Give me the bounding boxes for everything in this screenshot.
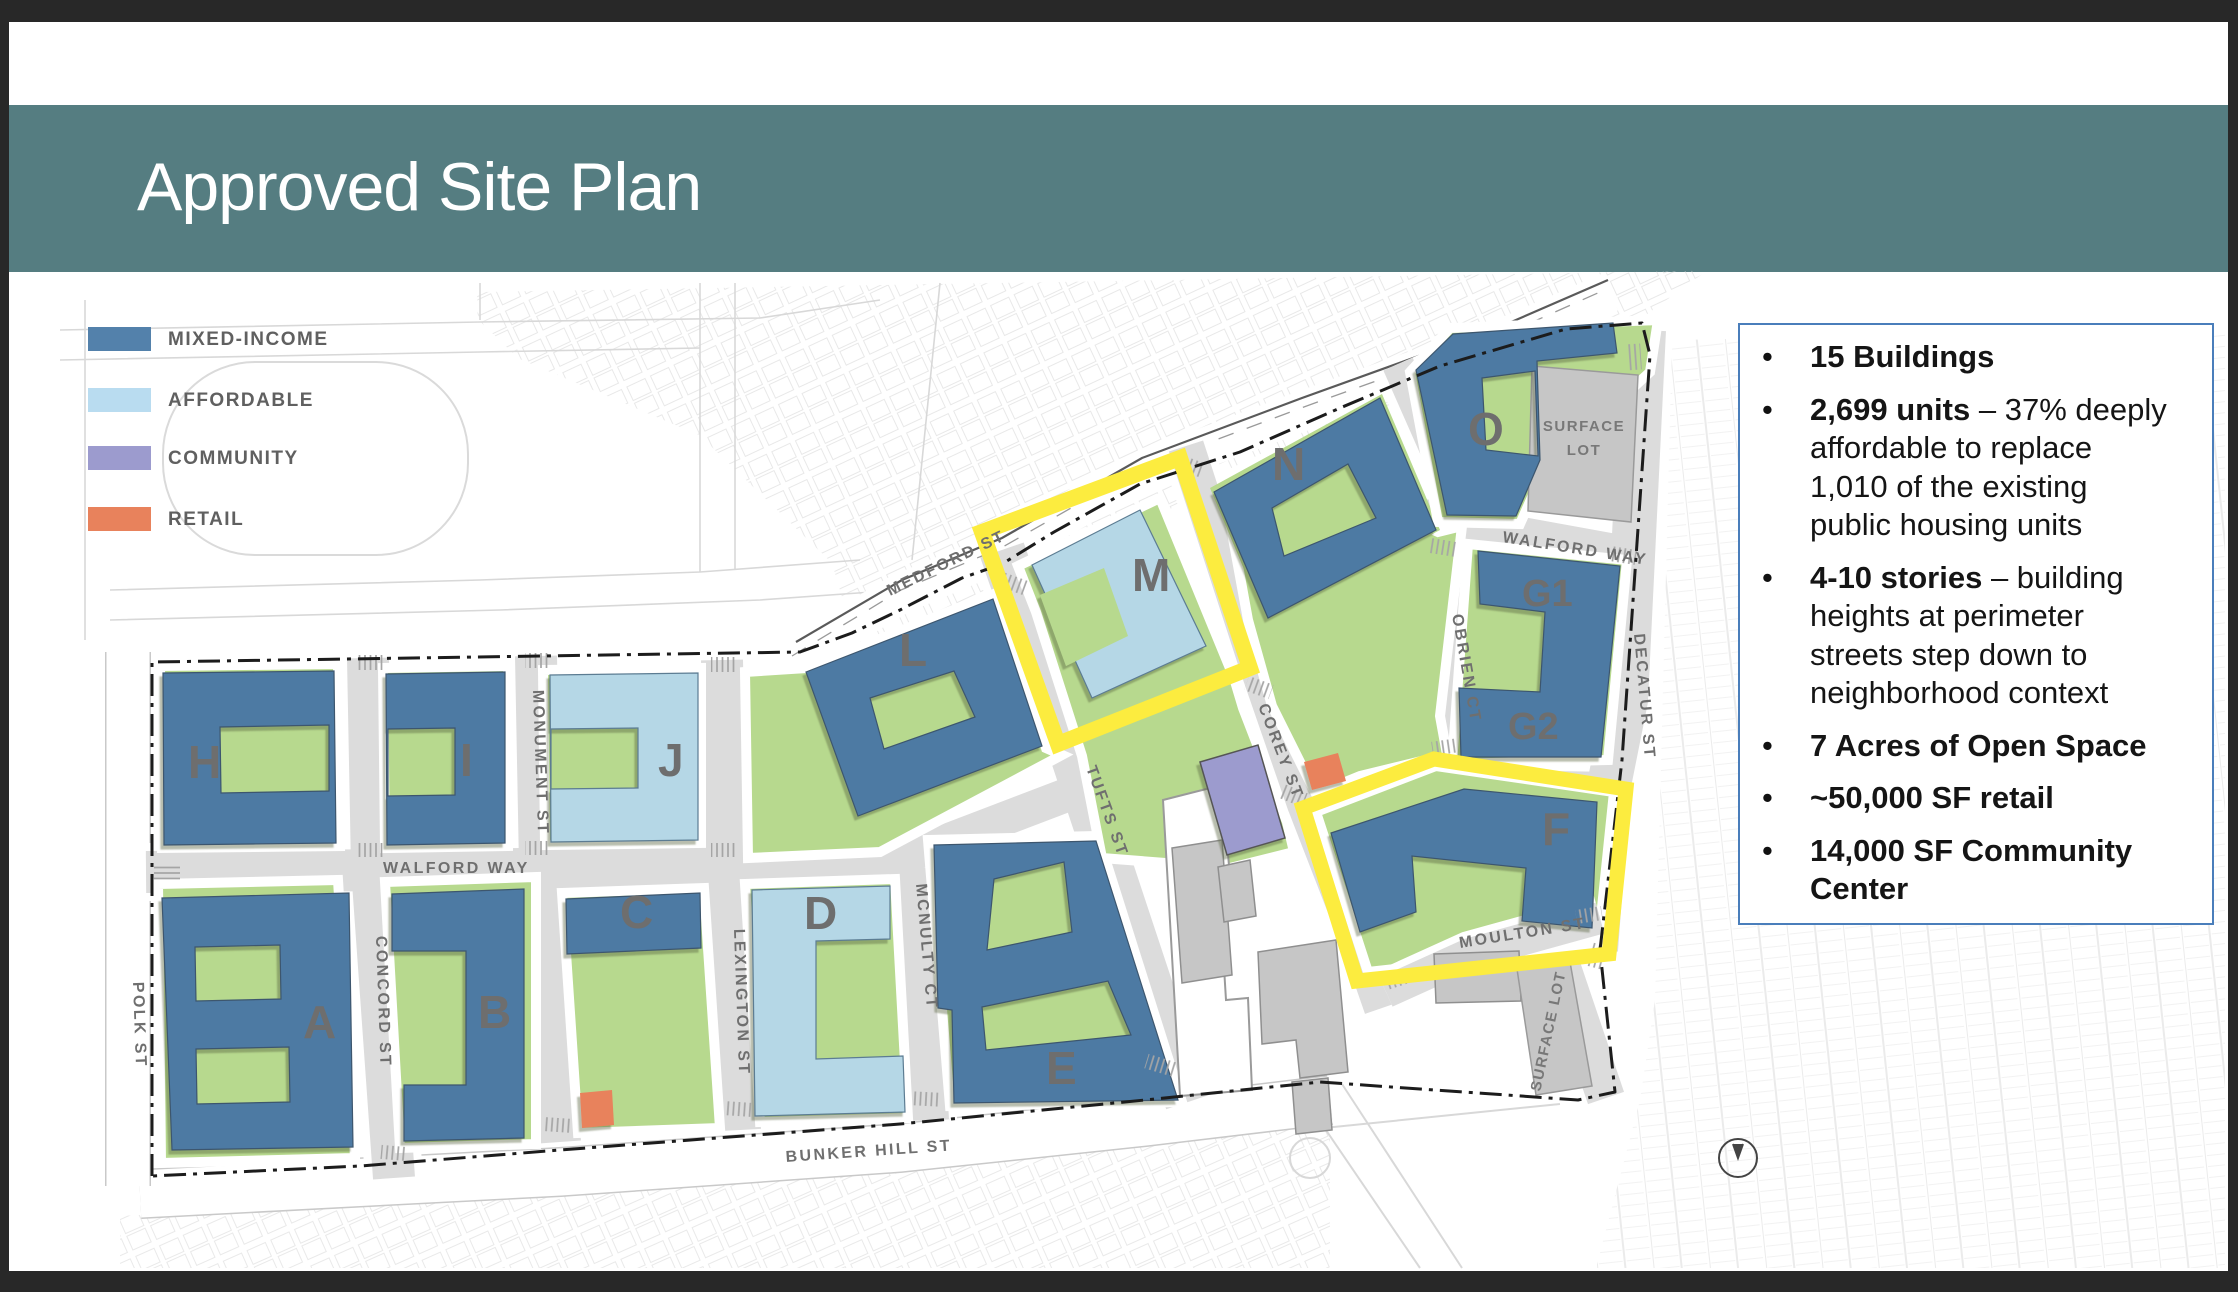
svg-text:LOT: LOT: [1567, 442, 1602, 459]
svg-text:POLK ST: POLK ST: [129, 982, 149, 1069]
svg-text:M: M: [1132, 549, 1170, 601]
svg-text:D: D: [804, 887, 837, 939]
svg-text:G1: G1: [1522, 573, 1573, 615]
svg-text:A: A: [303, 996, 336, 1048]
svg-text:SURFACE: SURFACE: [1543, 418, 1625, 435]
svg-text:L: L: [899, 624, 927, 676]
svg-text:O: O: [1468, 403, 1504, 455]
svg-text:J: J: [658, 734, 684, 786]
svg-text:C: C: [620, 886, 653, 938]
svg-text:G2: G2: [1508, 706, 1559, 748]
svg-text:H: H: [188, 736, 221, 788]
svg-text:N: N: [1272, 438, 1305, 490]
svg-text:I: I: [460, 734, 473, 786]
svg-text:B: B: [478, 986, 511, 1038]
svg-text:F: F: [1542, 803, 1570, 855]
svg-text:WALFORD WAY: WALFORD WAY: [383, 860, 530, 877]
svg-text:E: E: [1046, 1042, 1077, 1094]
